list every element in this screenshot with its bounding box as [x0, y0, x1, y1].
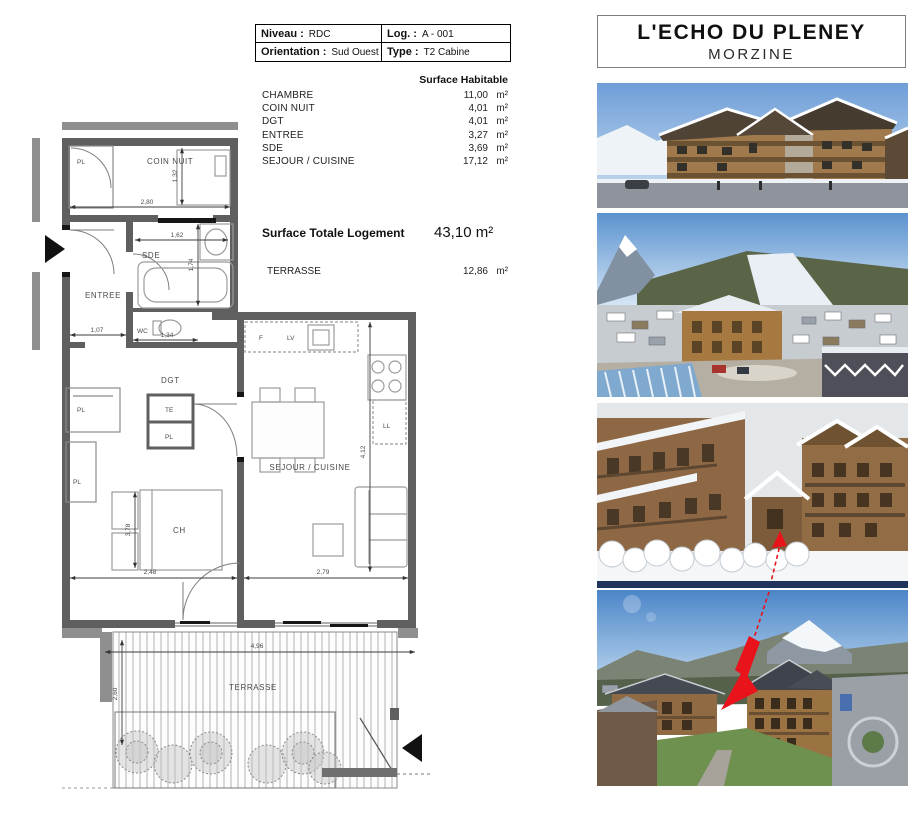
washer	[373, 400, 406, 444]
svg-text:2,79: 2,79	[317, 569, 330, 576]
label-pl: PL	[77, 407, 85, 414]
terrace	[62, 632, 433, 788]
svg-text:1,32: 1,32	[172, 169, 179, 182]
svg-text:1,62: 1,62	[171, 232, 184, 239]
dining-table	[252, 402, 324, 458]
label-pl: PL	[165, 434, 173, 441]
residence-title: L'ECHO DU PLENEY	[598, 21, 905, 45]
type-value: T2 Cabine	[424, 47, 470, 58]
label-sejour-cuisine: SEJOUR / CUISINE	[269, 463, 350, 472]
orientation-value: Sud Ouest	[331, 47, 378, 58]
coffee-table	[313, 524, 343, 556]
type-label: Type :	[387, 46, 419, 58]
windows	[175, 620, 377, 628]
label-sde: SDE	[142, 251, 160, 260]
label-ch: CH	[173, 526, 186, 535]
entry-arrow	[45, 235, 65, 263]
svg-text:1,07: 1,07	[91, 327, 104, 334]
type-cell: Type :T2 Cabine	[382, 43, 510, 61]
label-pl: PL	[73, 479, 81, 486]
niveau-value: RDC	[309, 29, 331, 40]
log-label: Log. :	[387, 28, 417, 40]
sofa	[355, 487, 407, 567]
svg-text:2,48: 2,48	[144, 569, 157, 576]
unit-info-table: Niveau :RDC Log. :A - 001 Orientation :S…	[255, 24, 511, 62]
svg-text:1,74: 1,74	[188, 258, 195, 271]
furniture	[112, 150, 407, 570]
stove	[368, 355, 406, 400]
surface-total-value: 43,10 m²	[434, 224, 493, 241]
niveau-label: Niveau :	[261, 28, 304, 40]
label-fridge: F	[259, 335, 263, 342]
label-coin-nuit: COIN NUIT	[147, 157, 193, 166]
label-terrasse: TERRASSE	[229, 683, 277, 692]
photo-village-aerial-summer	[597, 590, 908, 786]
label-pl: PL	[77, 159, 85, 166]
label-entree: ENTREE	[85, 291, 121, 300]
svg-text:3,78: 3,78	[125, 523, 132, 536]
surface-habitable-header: Surface Habitable	[255, 74, 508, 86]
floor-plan: 2,80 1,32 1,62 1,74 1,07 1,34 2,48 3,78 …	[25, 112, 435, 807]
photo-building-render	[597, 83, 908, 208]
property-sheet: Niveau :RDC Log. :A - 001 Orientation :S…	[0, 0, 919, 814]
label-washer: LL	[383, 423, 391, 430]
photo-village-aerial-winter	[597, 213, 908, 397]
surface-row: CHAMBRE11,00m²	[262, 89, 508, 102]
log-value: A - 001	[422, 29, 454, 40]
label-te: TE	[165, 407, 174, 414]
floor-plan-drawing: 2,80 1,32 1,62 1,74 1,07 1,34 2,48 3,78 …	[25, 112, 435, 807]
label-dgt: DGT	[161, 376, 180, 385]
label-wc: WC	[137, 328, 148, 335]
orientation-label: Orientation :	[261, 46, 326, 58]
svg-text:1,34: 1,34	[161, 332, 174, 339]
svg-text:4,96: 4,96	[251, 643, 264, 650]
svg-text:4,12: 4,12	[360, 445, 367, 458]
walls	[62, 138, 416, 628]
terrasse-value: 12,86	[452, 266, 488, 277]
terrasse-unit: m²	[488, 266, 508, 277]
svg-text:2,80: 2,80	[141, 199, 154, 206]
residence-title-box: L'ECHO DU PLENEY MORZINE	[597, 15, 906, 68]
niveau-cell: Niveau :RDC	[256, 25, 382, 43]
photo-residence-courtyard-winter	[597, 403, 908, 588]
exterior-walls	[32, 122, 418, 702]
svg-text:2,60: 2,60	[112, 687, 119, 700]
orientation-cell: Orientation :Sud Ouest	[256, 43, 382, 61]
residence-subtitle: MORZINE	[598, 46, 905, 63]
terrace-arrow	[402, 734, 422, 762]
label-dishwasher: LV	[287, 335, 295, 342]
log-cell: Log. :A - 001	[382, 25, 510, 43]
